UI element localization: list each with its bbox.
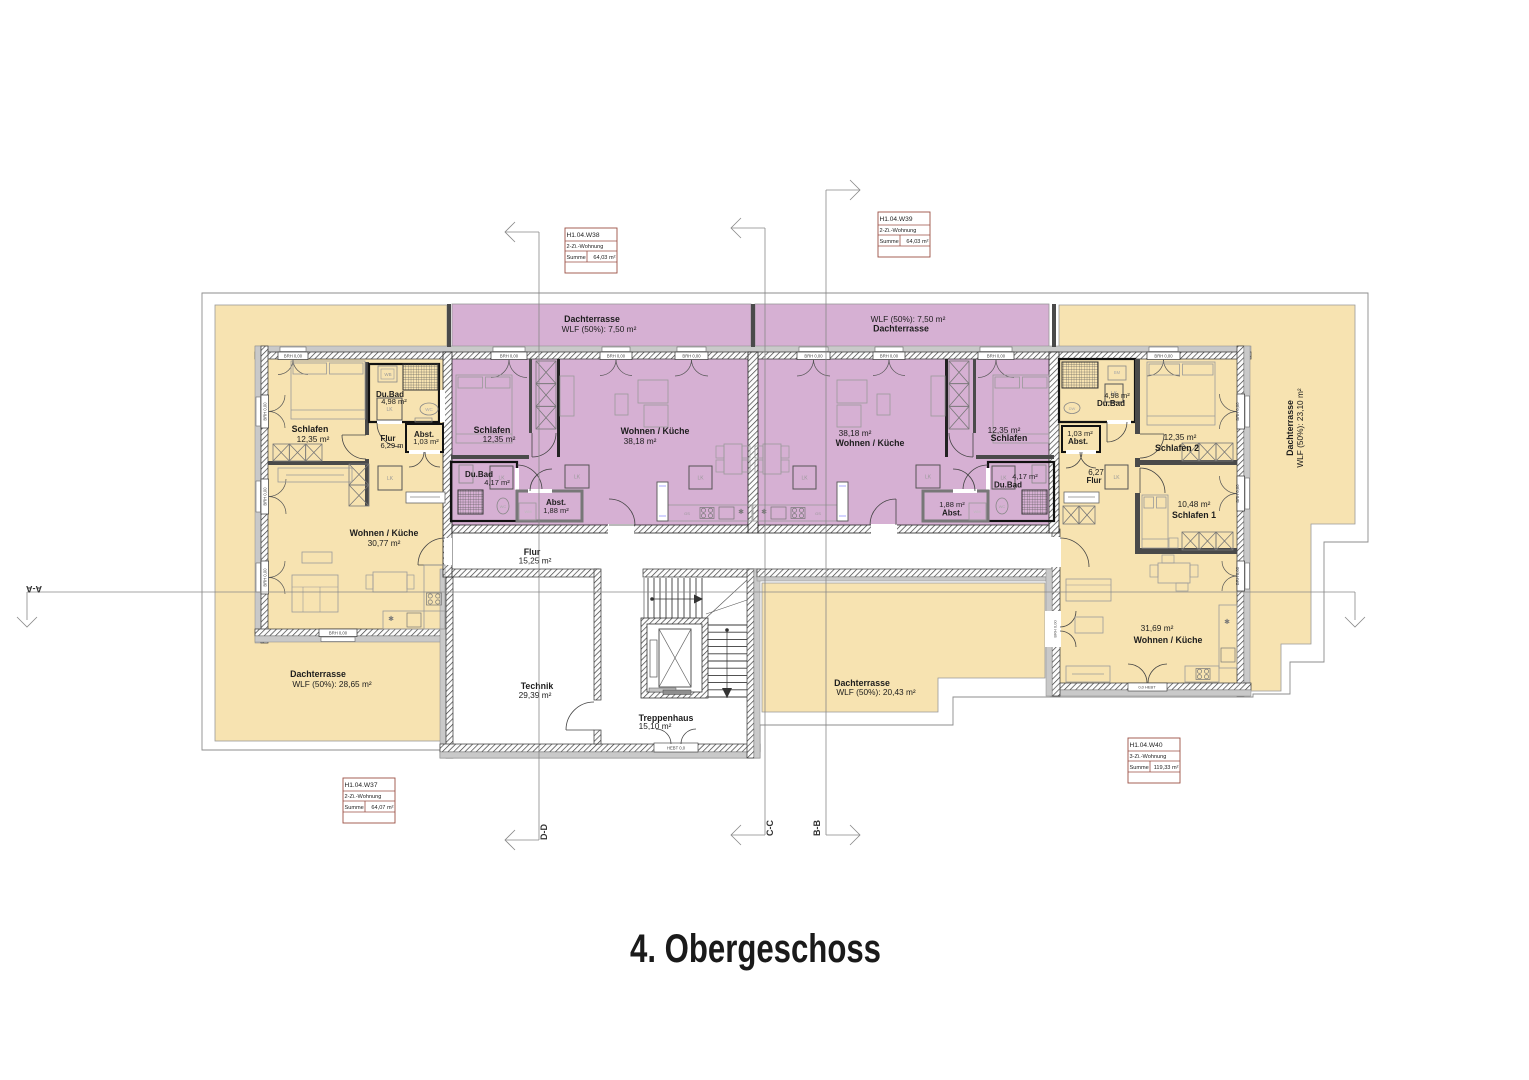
svg-text:Wohnen / Küche: Wohnen / Küche bbox=[350, 528, 419, 538]
svg-text:BRH 0,00: BRH 0,00 bbox=[329, 630, 348, 635]
svg-text:Wohnen / Küche: Wohnen / Küche bbox=[836, 438, 905, 448]
svg-text:Schlafen 2: Schlafen 2 bbox=[1155, 443, 1199, 453]
svg-text:10,48 m²: 10,48 m² bbox=[1178, 499, 1211, 509]
svg-text:WLF (50%): 23,10 m²: WLF (50%): 23,10 m² bbox=[1295, 388, 1305, 468]
svg-text:2-Zi.-Wohnung: 2-Zi.-Wohnung bbox=[345, 794, 382, 800]
svg-text:4. Obergeschoss: 4. Obergeschoss bbox=[630, 927, 881, 971]
svg-text:Dachterrasse: Dachterrasse bbox=[564, 314, 620, 324]
svg-text:WLF (50%): 7,50 m²: WLF (50%): 7,50 m² bbox=[562, 324, 637, 334]
svg-text:GS: GS bbox=[684, 511, 690, 516]
svg-text:3-Zi.-Wohnung: 3-Zi.-Wohnung bbox=[1130, 754, 1167, 760]
svg-text:WLF (50%): 7,50 m²: WLF (50%): 7,50 m² bbox=[871, 314, 946, 324]
svg-text:A-A: A-A bbox=[26, 584, 42, 594]
svg-text:30,77 m²: 30,77 m² bbox=[368, 538, 401, 548]
svg-text:WLF (50%): 20,43 m²: WLF (50%): 20,43 m² bbox=[836, 687, 916, 697]
svg-text:LK: LK bbox=[386, 407, 393, 413]
svg-text:Summe: Summe bbox=[1130, 765, 1149, 771]
svg-text:WB: WB bbox=[384, 372, 391, 377]
svg-text:WC: WC bbox=[500, 504, 507, 509]
svg-text:BRH 0,00: BRH 0,00 bbox=[262, 568, 267, 587]
svg-text:Wohnen / Küche: Wohnen / Küche bbox=[1134, 635, 1203, 645]
svg-text:✱: ✱ bbox=[761, 508, 767, 516]
svg-text:31,69 m²: 31,69 m² bbox=[1141, 623, 1174, 633]
svg-text:WM: WM bbox=[973, 509, 980, 514]
svg-text:12,35 m²: 12,35 m² bbox=[988, 425, 1021, 435]
svg-text:B-B: B-B bbox=[812, 820, 822, 836]
svg-text:Abst.: Abst. bbox=[1068, 437, 1088, 446]
svg-text:Wohnen / Küche: Wohnen / Küche bbox=[621, 426, 690, 436]
svg-text:WC: WC bbox=[999, 504, 1006, 509]
svg-text:WLF (50%): 28,65 m²: WLF (50%): 28,65 m² bbox=[292, 679, 372, 689]
svg-text:H1.04.W39: H1.04.W39 bbox=[880, 216, 913, 223]
svg-text:✱: ✱ bbox=[388, 615, 394, 623]
svg-text:Du.Bad: Du.Bad bbox=[994, 481, 1022, 490]
svg-text:6,29 m: 6,29 m bbox=[381, 441, 404, 450]
svg-text:64,03 m²: 64,03 m² bbox=[593, 255, 615, 261]
svg-text:H1.04.W40: H1.04.W40 bbox=[1130, 742, 1163, 749]
svg-text:38,18 m²: 38,18 m² bbox=[839, 428, 872, 438]
svg-text:4,17 m²: 4,17 m² bbox=[484, 478, 510, 487]
svg-text:15,10 m²: 15,10 m² bbox=[639, 721, 672, 731]
svg-text:2-Zi.-Wohnung: 2-Zi.-Wohnung bbox=[567, 244, 604, 250]
svg-text:C-C: C-C bbox=[765, 820, 775, 836]
svg-text:LK: LK bbox=[387, 476, 394, 482]
svg-text:GS: GS bbox=[815, 511, 821, 516]
svg-text:✱: ✱ bbox=[1224, 618, 1230, 626]
svg-text:BRH 0,00: BRH 0,00 bbox=[607, 353, 626, 358]
svg-text:38,18 m²: 38,18 m² bbox=[624, 436, 657, 446]
svg-text:BRH 0,00: BRH 0,00 bbox=[500, 353, 519, 358]
svg-text:H1.04.W37: H1.04.W37 bbox=[345, 782, 378, 789]
svg-text:LK: LK bbox=[697, 476, 704, 482]
svg-text:BRH 0,00: BRH 0,00 bbox=[262, 487, 267, 506]
svg-text:H1.04.W38: H1.04.W38 bbox=[567, 232, 600, 239]
svg-text:D-D: D-D bbox=[539, 824, 549, 840]
svg-text:Dachterrasse: Dachterrasse bbox=[873, 324, 929, 334]
svg-text:WM: WM bbox=[524, 509, 531, 514]
svg-text:BRH 0,00: BRH 0,00 bbox=[262, 402, 267, 421]
svg-text:Abst.: Abst. bbox=[942, 509, 962, 518]
svg-text:Summe: Summe bbox=[567, 255, 586, 261]
svg-text:1,88 m²: 1,88 m² bbox=[543, 506, 569, 515]
svg-text:BM: BM bbox=[1114, 370, 1121, 375]
svg-text:2-Zi.-Wohnung: 2-Zi.-Wohnung bbox=[880, 228, 917, 234]
svg-text:LK: LK bbox=[801, 476, 808, 482]
svg-text:Summe: Summe bbox=[345, 805, 364, 811]
svg-text:BRH 0,00: BRH 0,00 bbox=[1154, 353, 1173, 358]
svg-text:4,98 m²: 4,98 m² bbox=[381, 397, 407, 406]
svg-text:15,25 m²: 15,25 m² bbox=[519, 556, 552, 566]
svg-text:WC: WC bbox=[425, 407, 433, 412]
svg-text:DW: DW bbox=[1069, 406, 1076, 411]
svg-text:Flur: Flur bbox=[1086, 476, 1101, 485]
svg-text:LK: LK bbox=[925, 475, 932, 481]
svg-text:Schlafen 1: Schlafen 1 bbox=[1172, 510, 1216, 520]
svg-text:BRH 0,00: BRH 0,00 bbox=[1053, 620, 1058, 638]
svg-text:12,35 m²: 12,35 m² bbox=[1164, 432, 1197, 442]
svg-text:LK: LK bbox=[1113, 475, 1120, 481]
svg-text:LK: LK bbox=[574, 475, 581, 481]
svg-text:Dachterrasse: Dachterrasse bbox=[290, 669, 346, 679]
svg-text:Summe: Summe bbox=[880, 239, 899, 245]
svg-text:12,35 m²: 12,35 m² bbox=[483, 434, 516, 444]
svg-text:64,07 m²: 64,07 m² bbox=[371, 805, 393, 811]
svg-text:BRH 0,00: BRH 0,00 bbox=[804, 353, 823, 358]
svg-text:64,03 m²: 64,03 m² bbox=[906, 239, 928, 245]
svg-text:Du.Bad: Du.Bad bbox=[1097, 399, 1125, 408]
svg-text:29,39 m²: 29,39 m² bbox=[519, 690, 552, 700]
svg-text:HEBT 0,0: HEBT 0,0 bbox=[667, 746, 686, 751]
svg-text:1,03 m²: 1,03 m² bbox=[413, 437, 439, 446]
svg-text:12,35 m²: 12,35 m² bbox=[297, 434, 330, 444]
svg-text:Dachterrasse: Dachterrasse bbox=[1285, 400, 1295, 456]
svg-text:BRH 0,00: BRH 0,00 bbox=[987, 353, 1006, 358]
svg-text:0,0 HEBT: 0,0 HEBT bbox=[1138, 685, 1156, 690]
svg-text:BRH 0,00: BRH 0,00 bbox=[682, 353, 701, 358]
svg-text:119,33 m²: 119,33 m² bbox=[1154, 765, 1179, 771]
svg-text:BRH 0,00: BRH 0,00 bbox=[284, 353, 303, 358]
svg-text:BRH 0,00: BRH 0,00 bbox=[880, 353, 899, 358]
svg-text:✱: ✱ bbox=[738, 508, 744, 516]
svg-text:Schlafen: Schlafen bbox=[292, 424, 329, 434]
